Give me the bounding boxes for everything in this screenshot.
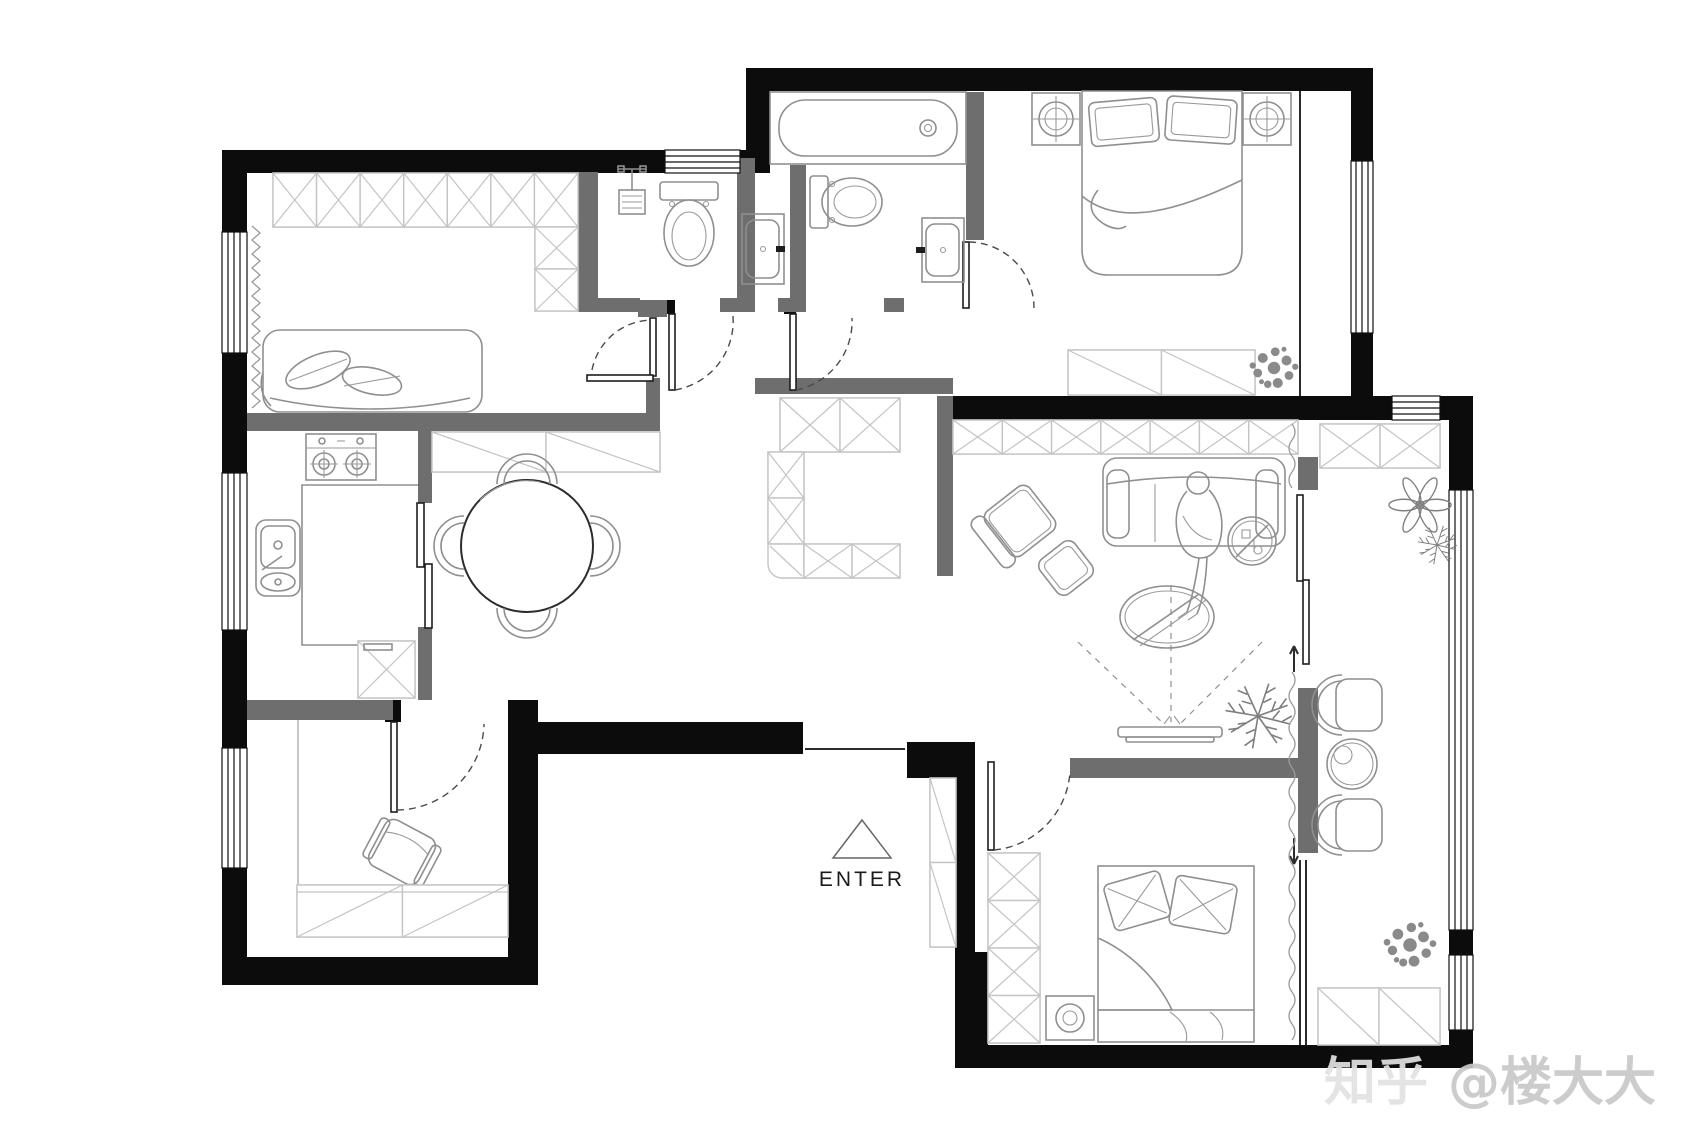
window-balcony-glass bbox=[1449, 490, 1473, 930]
enter-label: ENTER bbox=[819, 868, 905, 891]
stove-icon bbox=[306, 434, 376, 480]
partition-living-balcony-stub bbox=[1298, 457, 1318, 490]
hall-cabinet-column-icon bbox=[768, 452, 804, 544]
floorplan-shape bbox=[1236, 525, 1268, 557]
floorplan-shape bbox=[319, 438, 325, 444]
double-bed-icon bbox=[1098, 866, 1254, 1042]
partition-bath1-bottom bbox=[578, 298, 640, 312]
floorplan-shape bbox=[1242, 530, 1250, 538]
floorplan-shape bbox=[1046, 996, 1094, 1040]
armchair-icon bbox=[360, 813, 444, 891]
floorplan-shape bbox=[1082, 180, 1242, 213]
floorplan-shape bbox=[926, 224, 959, 276]
floorplan-shape bbox=[1098, 866, 1254, 1042]
floorplan-shape bbox=[1078, 642, 1164, 724]
partition-roomA-door-stub bbox=[638, 300, 667, 317]
wall-left-3 bbox=[222, 630, 247, 748]
kitchen bbox=[256, 434, 418, 698]
partition-kitchen-right-lower bbox=[418, 627, 432, 700]
floorplan-shape bbox=[391, 722, 397, 812]
floorplan-shape bbox=[1331, 743, 1373, 785]
floorplan-shape bbox=[1082, 91, 1242, 275]
floorplan-shape bbox=[672, 212, 706, 260]
floorplan-shape bbox=[1042, 544, 1090, 592]
watermark: 知乎 @楼大大 bbox=[1324, 1053, 1656, 1113]
ottoman-icon bbox=[1035, 537, 1097, 599]
curtain-icon bbox=[252, 226, 260, 408]
floorplan-shape bbox=[263, 330, 482, 412]
wall-left-4 bbox=[222, 868, 247, 985]
partition-roomA-bottom bbox=[247, 413, 660, 431]
tv-icon bbox=[1118, 727, 1222, 742]
floorplan-shape bbox=[1248, 540, 1260, 552]
floorplan-shape bbox=[1095, 104, 1154, 141]
study-room bbox=[297, 720, 508, 937]
floorplan-shape bbox=[310, 450, 338, 478]
floorplan-shape bbox=[1170, 1012, 1223, 1042]
window-study bbox=[222, 748, 247, 868]
wall-bedroom2-left-upper bbox=[955, 742, 975, 952]
sofa-icon bbox=[261, 330, 482, 412]
partition-corridor bbox=[755, 378, 953, 394]
double-bed-icon bbox=[1082, 91, 1242, 275]
partition-kitchen-right-upper bbox=[418, 431, 432, 503]
watermark-site: 知乎 bbox=[1324, 1053, 1428, 1113]
partition-bath-master-divider bbox=[966, 92, 984, 240]
floorplan-shape bbox=[289, 359, 347, 381]
floorplan-shape bbox=[761, 247, 766, 252]
window-kitchen bbox=[222, 473, 247, 630]
floorplan-shape bbox=[675, 316, 733, 390]
projection-cone-icon bbox=[1078, 585, 1262, 724]
floorplan-shape bbox=[1033, 96, 1079, 142]
floorplan-shape bbox=[1107, 477, 1281, 484]
floorplan-shape bbox=[986, 487, 1053, 554]
floorplan-shape bbox=[1164, 716, 1180, 724]
door-master bbox=[963, 242, 1034, 308]
floorplan-shape bbox=[1088, 97, 1160, 147]
partition-bath1-left bbox=[578, 172, 598, 312]
wall-left-2 bbox=[222, 353, 247, 473]
floorplan-shape bbox=[1171, 102, 1231, 138]
door-study bbox=[391, 722, 484, 812]
wall-hall-bottom bbox=[538, 722, 803, 754]
plant-icon bbox=[1250, 347, 1299, 388]
plant-icon bbox=[1389, 475, 1451, 534]
floorplan-shape bbox=[592, 320, 651, 370]
bedroom-2 bbox=[988, 853, 1254, 1043]
door-bedroom2 bbox=[988, 762, 1070, 850]
wall-right-upper bbox=[1351, 88, 1373, 161]
wall-top-high bbox=[746, 68, 1373, 91]
floorplan-shape bbox=[343, 450, 371, 478]
dining-area bbox=[432, 432, 660, 638]
balcony-table-icon bbox=[1327, 739, 1377, 789]
hallway bbox=[768, 398, 956, 947]
vanity-sink-icon bbox=[916, 218, 964, 282]
floorplan-shape bbox=[397, 724, 484, 810]
floorplan-shape bbox=[1176, 490, 1222, 558]
storage-cabinet-icon bbox=[1320, 424, 1440, 468]
door-bath1 bbox=[669, 314, 733, 390]
sliding-door-kitchen bbox=[417, 503, 432, 628]
floorplan-shape bbox=[344, 376, 400, 386]
nightstand-icon bbox=[1046, 996, 1094, 1040]
floorplan-shape bbox=[969, 242, 1034, 308]
floorplan-shape bbox=[1187, 557, 1207, 614]
floorplan-shape bbox=[1254, 546, 1262, 554]
window-balcony-glass-bottom bbox=[1449, 955, 1473, 1030]
wall-top-left bbox=[222, 150, 670, 173]
plant-icon bbox=[1384, 922, 1437, 967]
floorplan-shape bbox=[994, 772, 1070, 850]
wall-balcony-right-mid bbox=[1449, 930, 1473, 955]
floorplan-shape bbox=[261, 573, 295, 591]
floorplan-shape bbox=[1056, 1004, 1084, 1032]
floorplan-shape bbox=[822, 178, 882, 226]
floorplan-shape bbox=[670, 202, 675, 207]
wall-bedroom2-left-lower bbox=[955, 952, 988, 1045]
partition-balcony-t-wall bbox=[1298, 688, 1318, 853]
floorplan-shape bbox=[779, 100, 957, 156]
shoe-cabinet-icon bbox=[930, 778, 956, 947]
storage-cabinet-icon bbox=[297, 885, 508, 937]
floorplan-shape bbox=[650, 318, 656, 376]
entry: ENTER bbox=[819, 820, 905, 891]
washing-machine-icon bbox=[358, 641, 415, 698]
partition-bath2-stub-left bbox=[778, 298, 792, 312]
balcony-chair-icon bbox=[1312, 675, 1382, 735]
floorplan-shape bbox=[968, 513, 1018, 570]
nightstand-icon bbox=[1032, 93, 1080, 145]
watermark-author: @楼大大 bbox=[1448, 1053, 1656, 1113]
floorplan-shape bbox=[1098, 938, 1172, 1010]
sideboard-icon bbox=[432, 432, 660, 472]
floorplan-shape bbox=[357, 438, 363, 444]
wall-balcony-right-top bbox=[1449, 420, 1473, 490]
wall-entry-corner bbox=[907, 742, 955, 778]
floorplan-shape bbox=[261, 526, 295, 568]
floorplan-shape bbox=[664, 200, 714, 266]
floorplan-shape bbox=[386, 827, 431, 854]
plant-icon bbox=[1226, 684, 1292, 749]
floorplan-shape bbox=[480, 481, 540, 500]
wall-left-1 bbox=[222, 150, 247, 232]
hall-cabinet-upper-icon bbox=[780, 398, 900, 452]
bathroom-2 bbox=[742, 92, 966, 284]
dining-table-icon bbox=[461, 480, 593, 612]
floorplan-shape bbox=[1118, 727, 1222, 737]
floorplan-shape bbox=[981, 482, 1060, 561]
entry-arrow-icon bbox=[833, 820, 891, 858]
floorplan-shape bbox=[1183, 516, 1212, 540]
wall-balcony-corner bbox=[1440, 396, 1473, 420]
floorplan-shape bbox=[988, 762, 994, 850]
room-multifunction bbox=[252, 173, 578, 412]
floorplan-shape bbox=[1297, 495, 1303, 581]
floorplan-shape bbox=[425, 564, 432, 628]
partition-bath-divider-2 bbox=[790, 165, 806, 312]
partition-bath2-stub-right bbox=[884, 298, 904, 312]
floorplan-shape bbox=[1244, 96, 1290, 142]
bathtub-icon bbox=[770, 92, 966, 164]
floorplan-shape bbox=[776, 246, 785, 252]
floorplan-shape bbox=[1140, 600, 1206, 646]
floorplan-shape bbox=[1107, 470, 1129, 538]
wall-master-bottom bbox=[953, 396, 1392, 420]
partition-hall-living bbox=[937, 396, 953, 576]
floorplan-shape bbox=[790, 314, 796, 390]
partition-roomA-door-jamb bbox=[646, 378, 660, 431]
dining-chair-icon bbox=[434, 516, 464, 576]
floorplan-shape bbox=[1303, 580, 1309, 664]
toilet-icon bbox=[810, 176, 882, 228]
hall-cabinet-row-icon bbox=[804, 544, 900, 578]
floorplan-shape bbox=[417, 503, 424, 567]
floor-plan-page: ENTER 知乎 @楼大大 bbox=[0, 0, 1700, 1138]
partition-bedroom2-top bbox=[1070, 758, 1298, 778]
floorplan-shape bbox=[1168, 875, 1238, 935]
floorplan-shape bbox=[1187, 472, 1209, 494]
floorplan-shape bbox=[270, 398, 470, 409]
floorplan-shape bbox=[587, 375, 653, 381]
door-roomA bbox=[587, 318, 656, 381]
floorplan-shape bbox=[1165, 96, 1238, 145]
wardrobe-icon bbox=[273, 173, 578, 227]
bathroom-1 bbox=[618, 166, 718, 266]
floorplan-shape bbox=[1334, 746, 1352, 764]
floorplan-shape bbox=[1063, 1011, 1077, 1025]
side-cart-icon bbox=[1228, 517, 1276, 565]
wardrobe-icon bbox=[953, 420, 1298, 454]
kitchen-sink-icon bbox=[256, 520, 300, 596]
floorplan-shape bbox=[704, 202, 709, 207]
toilet-icon bbox=[660, 182, 718, 266]
floorplan-shape bbox=[1133, 594, 1199, 640]
floorplan-shape bbox=[274, 541, 282, 549]
window-balcony-top bbox=[1392, 396, 1440, 420]
floorplan-shape bbox=[660, 182, 718, 200]
shower-icon bbox=[618, 166, 646, 214]
floorplan-shape bbox=[916, 247, 925, 253]
balcony bbox=[1312, 424, 1457, 1045]
floorplan-shape bbox=[941, 248, 946, 253]
storage-cabinet-icon bbox=[1318, 988, 1440, 1045]
partition-bath1-stub bbox=[720, 298, 737, 312]
balcony-chair-icon bbox=[1312, 795, 1382, 855]
window-roomA bbox=[222, 232, 247, 353]
slide-arrow-up bbox=[1290, 646, 1298, 672]
sofa-icon bbox=[1103, 458, 1285, 546]
window-master-right bbox=[1351, 161, 1373, 333]
floorplan-shape bbox=[275, 579, 281, 585]
floorplan-shape bbox=[920, 120, 936, 136]
counter-edge bbox=[302, 485, 418, 645]
floorplan-shape bbox=[1327, 739, 1377, 789]
floor-plan-drawing: ENTER 知乎 @楼大大 bbox=[0, 0, 1700, 1138]
master-bedroom bbox=[1032, 91, 1298, 395]
floorplan-shape bbox=[1126, 737, 1214, 742]
wardrobe-side-column-icon bbox=[535, 227, 578, 311]
slide-arrow-down bbox=[1290, 838, 1298, 864]
floorplan-shape bbox=[810, 176, 828, 228]
coffee-table-icon bbox=[1120, 586, 1214, 648]
armchair-icon bbox=[968, 480, 1060, 570]
partition-kitchen-bottom bbox=[247, 700, 393, 720]
nightstand-icon bbox=[1243, 93, 1291, 145]
floorplan-shape bbox=[1103, 870, 1172, 932]
floorplan-shape bbox=[669, 314, 675, 390]
floorplan-shape bbox=[1180, 642, 1262, 724]
dresser-icon bbox=[1068, 350, 1255, 395]
wall-study-right bbox=[508, 700, 538, 957]
floorplan-shape bbox=[1173, 879, 1233, 930]
wall-bottom-left-room bbox=[222, 957, 538, 985]
wardrobe-icon bbox=[988, 853, 1040, 1043]
window-bath-top bbox=[665, 150, 740, 173]
dining-chair-icon bbox=[590, 516, 620, 576]
floorplan-shape bbox=[925, 125, 932, 132]
floorplan-shape bbox=[834, 186, 876, 218]
